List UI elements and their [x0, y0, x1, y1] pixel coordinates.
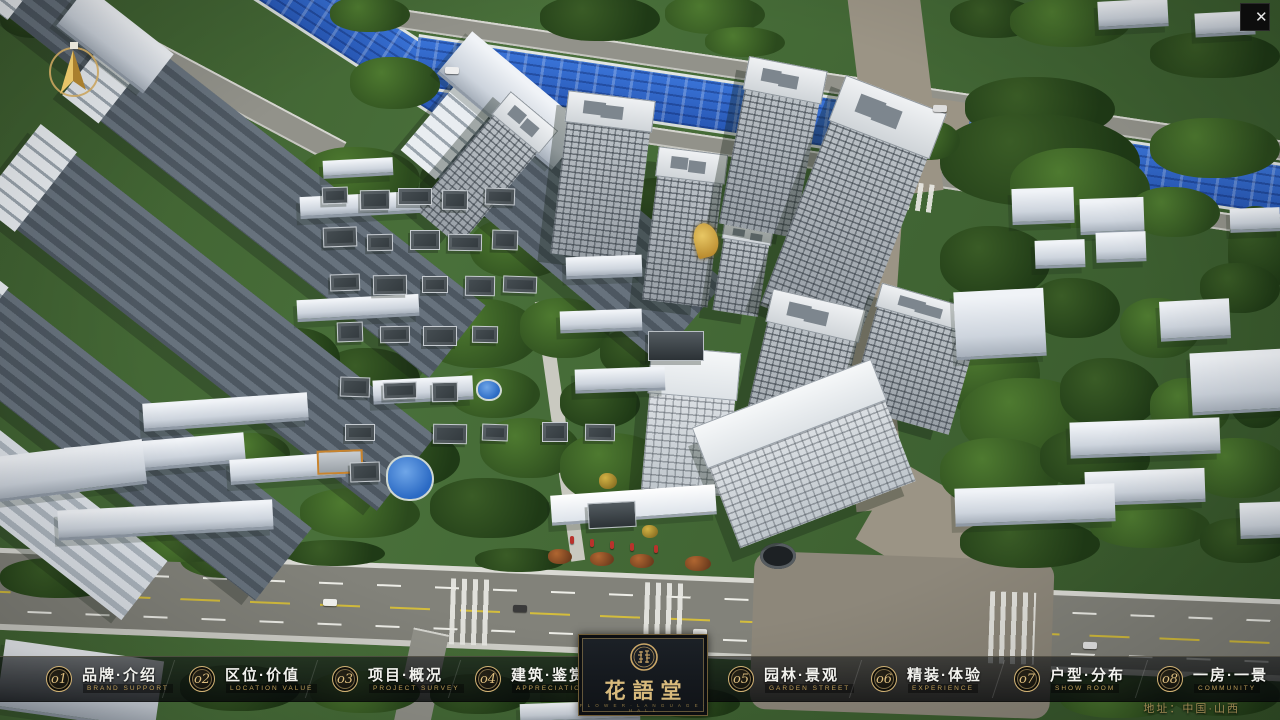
low-rise — [1095, 231, 1146, 263]
vehicle — [933, 104, 947, 111]
low-rise — [575, 366, 666, 393]
nav-num-badge: o4 — [475, 666, 501, 692]
tree-grove — [540, 0, 660, 41]
tree-grove — [350, 57, 440, 109]
red-flag — [590, 539, 594, 547]
red-flag — [630, 543, 634, 551]
low-rise — [1189, 349, 1280, 416]
logo-title: 花語堂 — [579, 675, 707, 705]
nav-num-badge: o7 — [1014, 666, 1040, 692]
tree-grove — [548, 549, 572, 564]
courtyard-house — [345, 424, 375, 441]
logo-home-button[interactable]: 花語堂 F L O W E R · L A N G U A G E · H A … — [578, 634, 708, 716]
courtyard-house — [322, 186, 349, 204]
nav-item-views[interactable]: o8一房·一景COMMUNITY — [1141, 656, 1280, 702]
seal-emblem-icon — [629, 642, 659, 672]
tree-grove — [285, 540, 385, 566]
courtyard-house — [422, 276, 448, 293]
vehicle — [323, 598, 337, 605]
nav-num-badge: o6 — [871, 666, 897, 692]
crosswalk — [449, 578, 491, 645]
low-rise — [566, 255, 643, 280]
courtyard-house — [442, 190, 468, 210]
nav-label-zh: 精装·体验 — [907, 664, 982, 685]
nav-label-zh: 建筑·鉴赏 — [511, 664, 586, 685]
nav-item-interior[interactable]: o6精装·体验EXPERIENCE — [855, 656, 995, 702]
nav-label-zh: 户型·分布 — [1050, 664, 1125, 685]
nav-num-badge: o2 — [189, 666, 215, 692]
vehicle — [445, 66, 459, 73]
courtyard-house — [482, 423, 509, 441]
pond — [386, 455, 434, 501]
low-rise — [1079, 197, 1144, 235]
nav-num-badge: o3 — [332, 666, 358, 692]
nav-label-en: GARDEN STREET — [765, 684, 854, 693]
crosswalk — [988, 591, 1036, 665]
presentation-screen: ✕ o1品牌·介绍BRAND SUPPORT o2区位·价值LOCATION V… — [0, 0, 1280, 720]
courtyard-house — [330, 273, 361, 291]
nav-item-floorplan[interactable]: o7户型·分布SHOW ROOM — [998, 656, 1138, 702]
low-rise — [954, 483, 1115, 527]
low-rise — [953, 288, 1046, 361]
nav-item-brand[interactable]: o1品牌·介绍BRAND SUPPORT — [30, 656, 170, 702]
courtyard-house — [350, 461, 381, 482]
tree-grove — [330, 0, 410, 32]
courtyard-house — [367, 233, 393, 250]
courtyard-house — [360, 190, 390, 211]
tree-grove — [1060, 358, 1160, 428]
courtyard-house — [398, 188, 432, 205]
courtyard-house — [337, 322, 364, 343]
nav-label-en: EXPERIENCE — [908, 684, 978, 693]
tree-grove — [630, 554, 654, 568]
tree-grove — [430, 478, 550, 538]
tree-grove — [599, 473, 617, 489]
low-rise — [1011, 187, 1074, 225]
nav-item-location[interactable]: o2区位·价值LOCATION VALUE — [173, 656, 313, 702]
courtyard-house — [383, 381, 418, 399]
address-text: 地址：中国·山西 — [1143, 700, 1240, 716]
nav-label-zh: 区位·价值 — [225, 664, 300, 685]
courtyard-house — [340, 376, 371, 397]
close-icon: ✕ — [1255, 4, 1268, 32]
nav-label-en: SHOW ROOM — [1051, 684, 1119, 693]
low-rise — [1239, 501, 1280, 539]
clubhouse — [648, 331, 704, 361]
entrance-gate — [587, 501, 636, 529]
nav-label-zh: 项目·概况 — [368, 664, 443, 685]
courtyard-house — [448, 233, 482, 251]
low-rise — [1069, 417, 1220, 458]
courtyard-house — [472, 325, 498, 342]
low-rise — [1097, 0, 1168, 30]
tree-grove — [705, 27, 785, 57]
courtyard-house — [485, 187, 516, 205]
close-button[interactable]: ✕ — [1240, 3, 1270, 31]
nav-item-landscape[interactable]: o5园林·景观GARDEN STREET — [712, 656, 852, 702]
low-rise — [323, 157, 394, 179]
vehicle — [1083, 641, 1097, 648]
tree-grove — [590, 552, 614, 566]
nav-item-project[interactable]: o3项目·概况PROJECT SURVEY — [316, 656, 456, 702]
nav-label-zh: 园林·景观 — [764, 664, 839, 685]
tree-grove — [1150, 32, 1280, 78]
red-flag — [610, 541, 614, 549]
low-rise — [560, 309, 643, 334]
tree-grove — [685, 556, 711, 571]
nav-label-en: COMMUNITY — [1194, 684, 1260, 693]
courtyard-house — [432, 382, 458, 402]
courtyard-house — [423, 326, 457, 346]
vehicle — [513, 604, 527, 611]
courtyard-house — [380, 325, 410, 343]
courtyard-house — [503, 275, 538, 293]
courtyard-house — [492, 230, 519, 251]
compass-icon — [42, 38, 106, 102]
logo-caption: F L O W E R · L A N G U A G E · H A L L — [579, 703, 707, 713]
tree-grove — [642, 525, 658, 538]
courtyard-house — [323, 226, 358, 247]
nav-label-en: BRAND SUPPORT — [83, 684, 173, 693]
nav-label-en: LOCATION VALUE — [226, 684, 317, 693]
tree-grove — [1150, 118, 1280, 178]
courtyard-house — [373, 275, 407, 296]
nav-num-badge: o8 — [1157, 666, 1183, 692]
nav-label-zh: 品牌·介绍 — [82, 664, 157, 685]
courtyard-house — [542, 422, 568, 442]
red-flag — [654, 545, 658, 553]
courtyard-house — [410, 230, 440, 250]
courtyard-house — [585, 423, 615, 441]
red-flag — [570, 536, 574, 544]
low-rise — [1035, 239, 1086, 269]
low-rise — [1159, 298, 1231, 342]
courtyard-house — [465, 276, 495, 297]
nav-label-zh: 一房·一景 — [1193, 664, 1268, 685]
courtyard-house — [433, 424, 467, 445]
low-rise — [1230, 207, 1280, 233]
nav-num-badge: o1 — [46, 666, 72, 692]
plaza-circle — [760, 543, 796, 569]
nav-num-badge: o5 — [728, 666, 754, 692]
pond — [476, 379, 502, 401]
